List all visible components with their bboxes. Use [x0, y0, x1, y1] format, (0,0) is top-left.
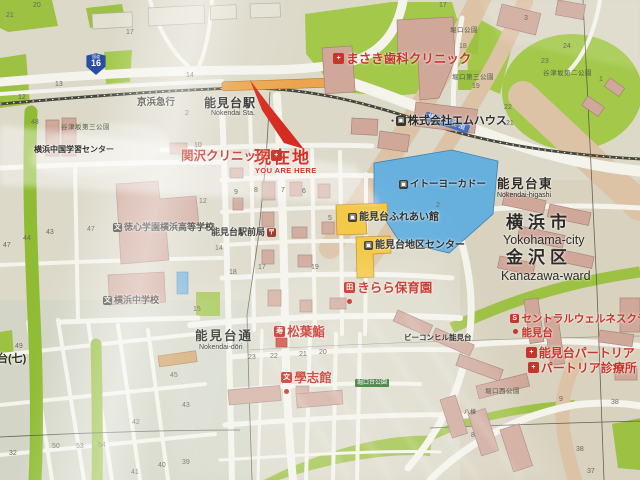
block-number: 23 — [541, 58, 549, 65]
block-number: 32 — [9, 450, 17, 457]
poi-sekizawa-clinic: 関沢クリニック+ — [181, 150, 282, 163]
park-label: 谷津坂第三公園 — [61, 125, 110, 132]
block-number: 18 — [229, 269, 237, 276]
block-number: 3 — [524, 15, 528, 22]
block-number: 17 — [258, 264, 266, 271]
route-number-label: 16 — [91, 59, 101, 68]
block-number: 21 — [6, 12, 14, 19]
poi-matsuba-sushi: 寿松葉鮨 — [274, 326, 325, 339]
poi-patria-clinic: +パートリア診療所 — [528, 362, 637, 374]
block-number: 1 — [599, 76, 603, 83]
route-16-shield: 国道 16 — [86, 53, 106, 75]
block-number: 18 — [459, 43, 467, 50]
poi-nokendai-ekimae-post-office: 能見台駅前局〒 — [211, 228, 276, 237]
nursery-icon: 田 — [344, 282, 355, 293]
post-icon: 〒 — [267, 228, 276, 237]
block-number: 20 — [33, 2, 41, 9]
poi-central-wellness-club-nokendai: Sセントラルウェルネスクラブ能見台 — [510, 314, 640, 338]
park-label: 堀口西公園 — [485, 389, 520, 396]
poi-nokendai-patria: +能見台パートリア — [526, 347, 635, 359]
school-icon: 文 — [113, 223, 122, 232]
district-east-label: 能見台東 — [497, 178, 553, 191]
block-number: 14 — [215, 245, 223, 252]
poi-name: 能見台ふれあい館 — [359, 213, 439, 223]
park-label: 堀口第三公園 — [452, 75, 494, 82]
company-icon: ▣ — [396, 116, 406, 126]
block-number: 39 — [182, 459, 190, 466]
ward-label-jp: 金沢区 — [506, 249, 572, 266]
block-number: 38 — [611, 399, 619, 406]
poi-nokendai-fureaikan: ▣能見台ふれあい館 — [348, 213, 439, 223]
block-number: 20 — [319, 349, 327, 356]
poi-name: 株式会社エムハウス — [408, 116, 507, 127]
block-number: 48 — [31, 119, 39, 126]
block-number: 53 — [76, 443, 84, 450]
block-number: 24 — [563, 43, 571, 50]
poi-masaki-dental-clinic: +まさき歯科クリニック — [333, 53, 471, 66]
block-number: 17 — [439, 2, 447, 9]
block-number: 6 — [302, 188, 306, 195]
area-edge-label: 台(七) — [0, 354, 26, 365]
sushi-icon: 寿 — [274, 326, 285, 337]
block-number: 44 — [23, 235, 31, 242]
poi-name: 横浜中学校 — [114, 296, 159, 305]
poi-name: まさき歯科クリニック — [346, 53, 471, 66]
poi-kirara-nursery: 田きらら保育園 — [344, 282, 432, 295]
you-are-here-en: YOU ARE HERE — [255, 167, 317, 175]
block-number: 45 — [170, 372, 178, 379]
block-number: 12 — [199, 198, 207, 205]
poi-name: 松葉鮨 — [287, 326, 325, 339]
block-number: 20 — [449, 123, 457, 130]
school-icon: 文 — [103, 296, 112, 305]
poi-label: 能見台パートリア — [539, 347, 635, 359]
block-number: 47 — [87, 226, 95, 233]
block-number: 37 — [587, 468, 595, 475]
block-number: 8 — [471, 432, 475, 439]
poi-label: セントラルウェルネスクラブ能見台 — [521, 314, 640, 338]
poi-label: 能見台駅前局 — [211, 228, 265, 237]
public-icon: ▣ — [364, 241, 373, 250]
poi-label: パートリア診療所 — [541, 362, 637, 374]
station-name: 能見台駅 — [204, 97, 256, 109]
poi-label: 松葉鮨 — [287, 326, 325, 339]
poi-label: 學志館 — [294, 372, 332, 385]
park-label: 堀口公園 — [450, 28, 478, 35]
poi-name: 徳心学園横浜高等学校 — [124, 223, 214, 232]
block-number: 41 — [131, 469, 139, 476]
public-icon: ▣ — [348, 213, 357, 222]
railway-operator-label: 京浜急行 — [137, 98, 175, 108]
poi-name: 能見台パートリア — [539, 347, 635, 359]
clinic-icon: + — [271, 150, 282, 161]
poi-name: イトーヨーカドー — [410, 180, 486, 190]
poi-label: ビーコンヒル能見台 — [404, 334, 472, 342]
block-number: 19 — [311, 264, 319, 271]
block-number: 12 — [18, 94, 26, 101]
poi-label: 横浜中学校 — [114, 296, 159, 305]
poi-label: 能見台地区センター — [375, 241, 465, 251]
poi-nokendai-district-center: ▣能見台地区センター — [364, 241, 465, 251]
poi-name: 能見台駅前局 — [211, 228, 265, 237]
poi-label: 株式会社エムハウス — [408, 116, 507, 127]
block-number: 7 — [281, 187, 285, 194]
poi-label: 横浜中国学習センター — [34, 146, 114, 154]
block-number: 21 — [506, 120, 514, 127]
block-number: 23 — [248, 354, 256, 361]
poi-name: ビーコンヒル能見台 — [404, 334, 472, 342]
park-label: 堀口台公園 — [355, 379, 389, 387]
poi-dot — [347, 299, 352, 304]
poi-label: イトーヨーカドー — [410, 180, 486, 190]
gym-icon: S — [510, 314, 519, 323]
poi-dot — [513, 329, 518, 334]
poi-beacon-hill-nokendai: ビーコンヒル能見台 — [404, 334, 472, 342]
block-number: 9 — [234, 189, 238, 196]
poi-name-line2: 能見台 — [521, 328, 640, 339]
block-number: 13 — [55, 81, 63, 88]
station-romaji: Nokendai Sta. — [211, 110, 255, 117]
block-number: 2 — [185, 110, 189, 117]
block-number: 13 — [207, 223, 215, 230]
poi-name: 學志館 — [294, 372, 332, 385]
block-number: 43 — [46, 229, 54, 236]
park-label: 谷津坂第二公園 — [543, 71, 592, 78]
poi-gakushikan: 文學志館 — [281, 372, 332, 385]
poi-dot — [284, 389, 289, 394]
block-number: 42 — [132, 419, 140, 426]
poi-label: 徳心学園横浜高等学校 — [124, 223, 214, 232]
poi-yokohama-junior-high-school: 文横浜中学校 — [103, 296, 159, 305]
poi-name: パートリア診療所 — [541, 362, 637, 374]
block-number: 40 — [158, 462, 166, 469]
poi-name: セントラルウェルネスクラブ — [521, 314, 640, 325]
labels-layer: 京浜急行 能見台駅 Nokendai Sta. 国道 16 横須賀街道 現在地 … — [0, 0, 640, 480]
poi-ito-yokado: ▣イトーヨーカドー — [399, 180, 486, 190]
poi-label: まさき歯科クリニック — [346, 53, 471, 66]
block-number: 38 — [576, 446, 584, 453]
hospital-icon: + — [526, 347, 537, 358]
block-number: 5 — [328, 215, 332, 222]
street-label-jp: 能見台通 — [195, 330, 253, 343]
block-number: 8 — [254, 187, 258, 194]
city-label-jp: 横浜市 — [506, 214, 572, 231]
block-number: 17 — [126, 29, 134, 36]
poi-name: 関沢クリニック — [181, 150, 269, 163]
street-label-romaji: Nokendai-dōri — [199, 344, 243, 351]
block-number: 19 — [472, 83, 480, 90]
poi-label: 能見台ふれあい館 — [359, 213, 439, 223]
block-number: 9 — [559, 396, 563, 403]
block-number: 21 — [299, 351, 307, 358]
city-label-en: Yokohama-city — [503, 234, 585, 247]
map-board-photo: 京浜急行 能見台駅 Nokendai Sta. 国道 16 横須賀街道 現在地 … — [0, 0, 640, 480]
block-number: 22 — [504, 104, 512, 111]
block-number: 49 — [15, 343, 23, 350]
bullet-dot: ● — [391, 119, 394, 124]
poi-name: 能見台地区センター — [375, 241, 465, 251]
block-number: 22 — [270, 353, 278, 360]
store-icon: ▣ — [399, 180, 408, 189]
poi-label: 関沢クリニック — [181, 150, 269, 163]
poi-name: きらら保育園 — [357, 282, 432, 295]
poi-yokohama-gakushu-center: 横浜中国学習センター — [34, 146, 114, 154]
poi-label: きらら保育園 — [357, 282, 432, 295]
block-number: 43 — [182, 402, 190, 409]
block-number: 14 — [186, 72, 194, 79]
district-east-romaji: Nokendai-higashi — [497, 192, 551, 199]
block-number: 47 — [3, 242, 11, 249]
poi-tokushin-gakuen-yokohama-high-school: 文徳心学園横浜高等学校 — [113, 223, 214, 232]
misc-label: 八棟 — [464, 410, 476, 416]
block-number: 50 — [52, 443, 60, 450]
block-number: 10 — [194, 142, 202, 149]
clinic-icon: + — [333, 53, 344, 64]
poi-name: 横浜中国学習センター — [34, 146, 114, 154]
hospital-icon: + — [528, 362, 539, 373]
juku-icon: 文 — [281, 372, 292, 383]
ward-label-en: Kanazawa-ward — [501, 270, 591, 283]
block-number: 2 — [436, 202, 440, 209]
block-number: 54 — [98, 442, 106, 449]
block-number: 15 — [193, 306, 201, 313]
